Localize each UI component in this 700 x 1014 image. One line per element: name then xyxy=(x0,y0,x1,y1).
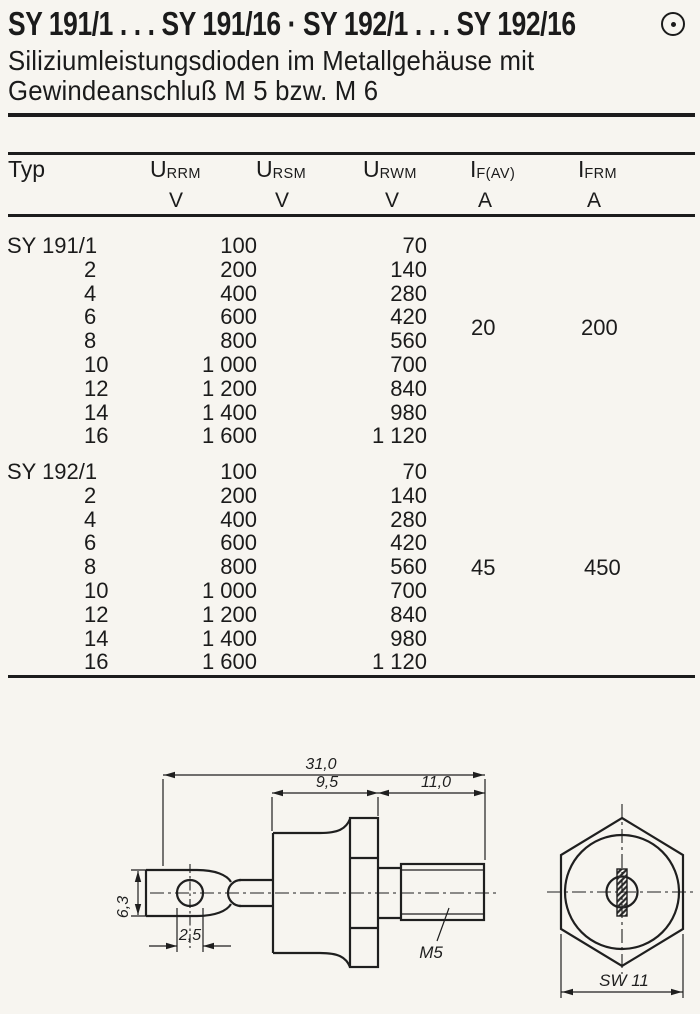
dim-label-hole: 2,5 xyxy=(178,927,201,944)
thread-label: M5 xyxy=(419,943,443,962)
dimension-tab-height: 6,3 xyxy=(115,870,154,918)
dim-label-tab-height: 6,3 xyxy=(115,896,132,918)
thread-callout: M5 xyxy=(419,908,449,962)
dimension-body-length: 9,5 xyxy=(272,774,378,831)
threaded-stud xyxy=(378,864,484,920)
hex-end-view: SW 11 xyxy=(547,804,697,998)
wrench-size-label: SW 11 xyxy=(599,971,649,990)
dim-label-stud: 11,0 xyxy=(421,774,451,791)
side-view: 31,0 9,5 11,0 xyxy=(115,756,496,967)
dim-label-overall: 31,0 xyxy=(305,756,336,773)
technical-drawing: 31,0 9,5 11,0 xyxy=(0,0,700,1014)
dimension-hole: 2,5 xyxy=(149,908,231,952)
dim-label-body: 9,5 xyxy=(316,774,338,791)
datasheet-page: SY 191/1 . . . SY 191/16 · SY 192/1 . . … xyxy=(0,0,700,1014)
dimension-stud-length: 11,0 xyxy=(378,774,485,796)
dimension-overall-length: 31,0 xyxy=(163,756,485,866)
